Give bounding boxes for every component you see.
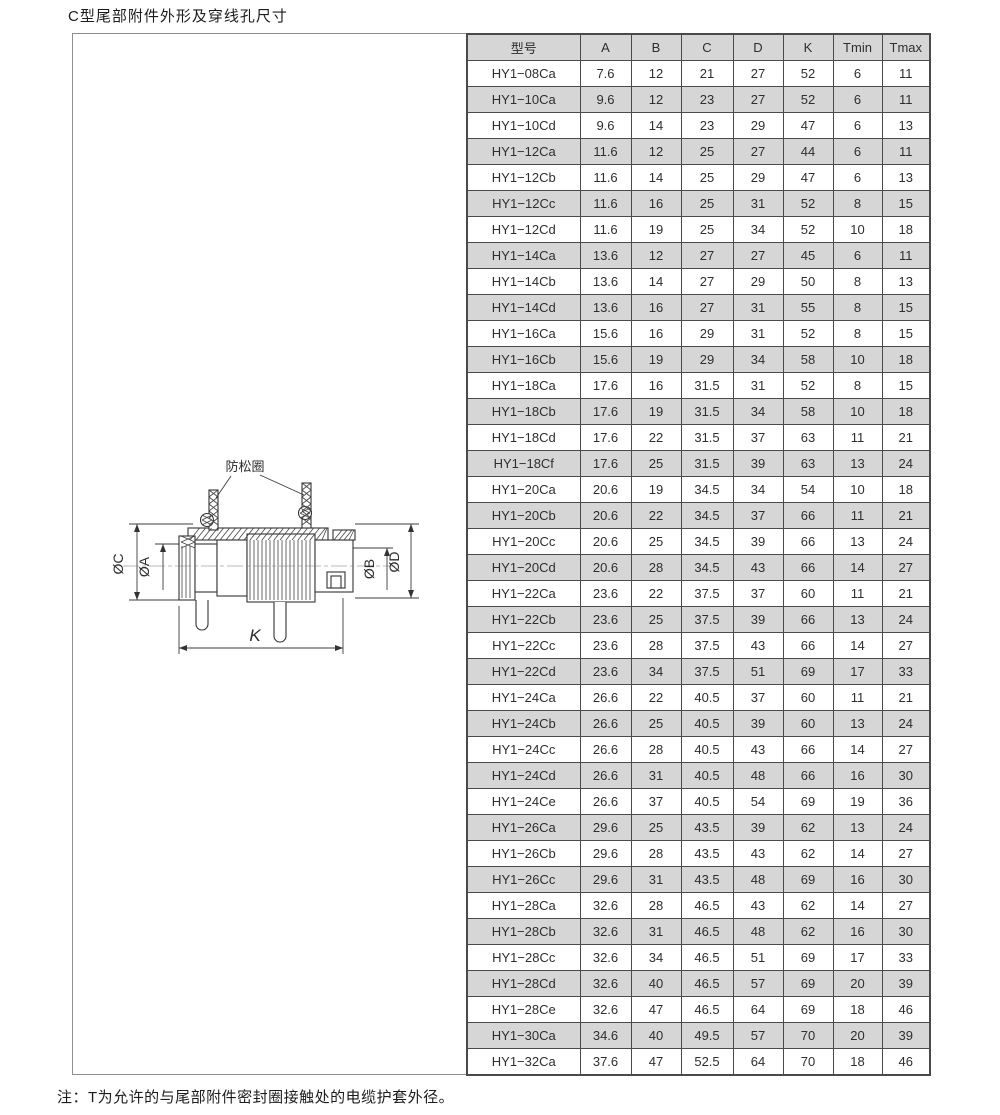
value-cell: 8: [833, 373, 882, 399]
value-cell: 40.5: [681, 711, 733, 737]
value-cell: 13: [882, 165, 930, 191]
model-cell: HY1−20Cb: [467, 503, 580, 529]
value-cell: 15.6: [580, 347, 631, 373]
value-cell: 25: [631, 711, 681, 737]
value-cell: 18: [882, 347, 930, 373]
model-cell: HY1−18Cd: [467, 425, 580, 451]
value-cell: 15: [882, 321, 930, 347]
model-cell: HY1−08Ca: [467, 61, 580, 87]
model-cell: HY1−14Ca: [467, 243, 580, 269]
value-cell: 9.6: [580, 113, 631, 139]
value-cell: 33: [882, 945, 930, 971]
table-row: HY1−12Cc11.616253152815: [467, 191, 930, 217]
model-cell: HY1−22Cd: [467, 659, 580, 685]
value-cell: 52: [783, 321, 833, 347]
value-cell: 51: [733, 659, 783, 685]
value-cell: 47: [783, 113, 833, 139]
model-cell: HY1−32Ca: [467, 1049, 580, 1076]
value-cell: 70: [783, 1049, 833, 1076]
table-header-row: 型号ABCDKTminTmax: [467, 34, 930, 61]
model-cell: HY1−12Cc: [467, 191, 580, 217]
value-cell: 14: [631, 269, 681, 295]
value-cell: 32.6: [580, 945, 631, 971]
value-cell: 37: [733, 425, 783, 451]
value-cell: 54: [733, 789, 783, 815]
value-cell: 24: [882, 451, 930, 477]
value-cell: 19: [631, 217, 681, 243]
value-cell: 13.6: [580, 269, 631, 295]
value-cell: 66: [783, 633, 833, 659]
value-cell: 29.6: [580, 815, 631, 841]
value-cell: 49.5: [681, 1023, 733, 1049]
value-cell: 48: [733, 919, 783, 945]
value-cell: 13: [833, 607, 882, 633]
table-row: HY1−10Ca9.612232752611: [467, 87, 930, 113]
value-cell: 60: [783, 581, 833, 607]
value-cell: 14: [833, 893, 882, 919]
value-cell: 48: [733, 763, 783, 789]
table-row: HY1−30Ca34.64049.557702039: [467, 1023, 930, 1049]
value-cell: 32.6: [580, 971, 631, 997]
value-cell: 6: [833, 113, 882, 139]
value-cell: 11: [882, 61, 930, 87]
value-cell: 37.5: [681, 659, 733, 685]
value-cell: 14: [833, 737, 882, 763]
table-row: HY1−18Cf17.62531.539631324: [467, 451, 930, 477]
value-cell: 26.6: [580, 685, 631, 711]
value-cell: 43: [733, 893, 783, 919]
table-row: HY1−08Ca7.612212752611: [467, 61, 930, 87]
value-cell: 27: [733, 139, 783, 165]
value-cell: 63: [783, 451, 833, 477]
value-cell: 13: [833, 711, 882, 737]
value-cell: 29.6: [580, 841, 631, 867]
value-cell: 37.6: [580, 1049, 631, 1076]
footnote: 注：T为允许的与尾部附件密封圈接触处的电缆护套外径。: [57, 1086, 454, 1107]
value-cell: 14: [631, 165, 681, 191]
value-cell: 16: [833, 867, 882, 893]
model-cell: HY1−24Cb: [467, 711, 580, 737]
table-row: HY1−28Ca32.62846.543621427: [467, 893, 930, 919]
value-cell: 46.5: [681, 997, 733, 1023]
value-cell: 18: [833, 1049, 882, 1076]
value-cell: 37.5: [681, 633, 733, 659]
table-row: HY1−16Ca15.616293152815: [467, 321, 930, 347]
value-cell: 8: [833, 269, 882, 295]
value-cell: 57: [733, 971, 783, 997]
value-cell: 43.5: [681, 867, 733, 893]
value-cell: 16: [833, 763, 882, 789]
value-cell: 14: [631, 113, 681, 139]
value-cell: 17.6: [580, 425, 631, 451]
value-cell: 24: [882, 815, 930, 841]
value-cell: 6: [833, 139, 882, 165]
value-cell: 47: [631, 1049, 681, 1076]
value-cell: 16: [631, 191, 681, 217]
value-cell: 31.5: [681, 373, 733, 399]
value-cell: 37: [733, 581, 783, 607]
dim-label-b: ØB: [361, 559, 377, 579]
table-row: HY1−18Cd17.62231.537631121: [467, 425, 930, 451]
value-cell: 22: [631, 685, 681, 711]
value-cell: 34.5: [681, 529, 733, 555]
value-cell: 45: [783, 243, 833, 269]
value-cell: 57: [733, 1023, 783, 1049]
value-cell: 18: [833, 997, 882, 1023]
value-cell: 58: [783, 399, 833, 425]
value-cell: 40.5: [681, 789, 733, 815]
value-cell: 66: [783, 529, 833, 555]
value-cell: 10: [833, 347, 882, 373]
table-row: HY1−20Cb20.62234.537661121: [467, 503, 930, 529]
value-cell: 14: [833, 555, 882, 581]
value-cell: 34.5: [681, 477, 733, 503]
value-cell: 66: [783, 555, 833, 581]
value-cell: 44: [783, 139, 833, 165]
value-cell: 43.5: [681, 841, 733, 867]
value-cell: 34.5: [681, 503, 733, 529]
column-header: Tmax: [882, 34, 930, 61]
value-cell: 31: [631, 919, 681, 945]
value-cell: 26.6: [580, 789, 631, 815]
model-cell: HY1−12Cd: [467, 217, 580, 243]
value-cell: 26.6: [580, 711, 631, 737]
value-cell: 30: [882, 763, 930, 789]
value-cell: 25: [681, 165, 733, 191]
value-cell: 29: [733, 269, 783, 295]
value-cell: 43: [733, 841, 783, 867]
value-cell: 22: [631, 581, 681, 607]
model-cell: HY1−28Ca: [467, 893, 580, 919]
value-cell: 52: [783, 61, 833, 87]
dimensions-table: 型号ABCDKTminTmax HY1−08Ca7.612212752611HY…: [466, 33, 931, 1076]
value-cell: 11: [833, 425, 882, 451]
dim-label-a: ØA: [136, 556, 152, 577]
value-cell: 47: [631, 997, 681, 1023]
table-row: HY1−26Cb29.62843.543621427: [467, 841, 930, 867]
value-cell: 69: [783, 867, 833, 893]
value-cell: 39: [882, 971, 930, 997]
value-cell: 40: [631, 971, 681, 997]
model-cell: HY1−12Ca: [467, 139, 580, 165]
value-cell: 70: [783, 1023, 833, 1049]
part-label-anti-loosening-ring: 防松圈: [225, 459, 264, 474]
technical-drawing: 防松圈 ØC ØA ØB ØD K: [93, 440, 443, 678]
value-cell: 9.6: [580, 87, 631, 113]
value-cell: 34: [631, 945, 681, 971]
model-cell: HY1−24Cc: [467, 737, 580, 763]
value-cell: 25: [681, 217, 733, 243]
value-cell: 40.5: [681, 685, 733, 711]
value-cell: 19: [833, 789, 882, 815]
value-cell: 66: [783, 503, 833, 529]
value-cell: 39: [733, 607, 783, 633]
value-cell: 43: [733, 633, 783, 659]
page-title: C型尾部附件外形及穿线孔尺寸: [68, 5, 288, 26]
connector-body: [179, 483, 355, 642]
value-cell: 27: [882, 555, 930, 581]
value-cell: 21: [882, 503, 930, 529]
value-cell: 19: [631, 399, 681, 425]
table-row: HY1−32Ca37.64752.564701846: [467, 1049, 930, 1076]
value-cell: 28: [631, 633, 681, 659]
value-cell: 32.6: [580, 893, 631, 919]
value-cell: 28: [631, 841, 681, 867]
column-header: C: [681, 34, 733, 61]
value-cell: 18: [882, 399, 930, 425]
value-cell: 30: [882, 919, 930, 945]
model-cell: HY1−30Ca: [467, 1023, 580, 1049]
value-cell: 52: [783, 191, 833, 217]
model-cell: HY1−22Cb: [467, 607, 580, 633]
value-cell: 25: [681, 191, 733, 217]
value-cell: 26.6: [580, 737, 631, 763]
value-cell: 13.6: [580, 295, 631, 321]
value-cell: 20.6: [580, 529, 631, 555]
value-cell: 55: [783, 295, 833, 321]
value-cell: 24: [882, 529, 930, 555]
value-cell: 11: [833, 685, 882, 711]
value-cell: 20.6: [580, 555, 631, 581]
value-cell: 66: [783, 737, 833, 763]
value-cell: 10: [833, 399, 882, 425]
value-cell: 8: [833, 191, 882, 217]
value-cell: 6: [833, 243, 882, 269]
value-cell: 39: [733, 711, 783, 737]
value-cell: 37.5: [681, 581, 733, 607]
table-row: HY1−20Cc20.62534.539661324: [467, 529, 930, 555]
model-cell: HY1−10Cd: [467, 113, 580, 139]
table-row: HY1−12Cd11.6192534521018: [467, 217, 930, 243]
value-cell: 20.6: [580, 503, 631, 529]
value-cell: 40.5: [681, 763, 733, 789]
model-cell: HY1−12Cb: [467, 165, 580, 191]
model-cell: HY1−26Ca: [467, 815, 580, 841]
value-cell: 39: [882, 1023, 930, 1049]
value-cell: 46.5: [681, 893, 733, 919]
table-row: HY1−24Cc26.62840.543661427: [467, 737, 930, 763]
value-cell: 34.6: [580, 1023, 631, 1049]
value-cell: 69: [783, 659, 833, 685]
value-cell: 29: [681, 347, 733, 373]
value-cell: 8: [833, 295, 882, 321]
value-cell: 37: [631, 789, 681, 815]
value-cell: 34: [733, 347, 783, 373]
value-cell: 11: [833, 581, 882, 607]
column-header: Tmin: [833, 34, 882, 61]
value-cell: 25: [681, 139, 733, 165]
value-cell: 23.6: [580, 659, 631, 685]
value-cell: 20: [833, 971, 882, 997]
table-row: HY1−28Cc32.63446.551691733: [467, 945, 930, 971]
value-cell: 51: [733, 945, 783, 971]
value-cell: 13.6: [580, 243, 631, 269]
value-cell: 32.6: [580, 919, 631, 945]
value-cell: 16: [833, 919, 882, 945]
value-cell: 18: [882, 477, 930, 503]
model-cell: HY1−26Cb: [467, 841, 580, 867]
value-cell: 11: [882, 87, 930, 113]
value-cell: 62: [783, 841, 833, 867]
model-cell: HY1−18Ca: [467, 373, 580, 399]
value-cell: 64: [733, 1049, 783, 1076]
value-cell: 23: [681, 87, 733, 113]
model-cell: HY1−20Cc: [467, 529, 580, 555]
dim-label-k: K: [249, 626, 261, 645]
table-row: HY1−28Cb32.63146.548621630: [467, 919, 930, 945]
value-cell: 60: [783, 711, 833, 737]
value-cell: 25: [631, 815, 681, 841]
value-cell: 25: [631, 529, 681, 555]
value-cell: 31: [733, 321, 783, 347]
value-cell: 11: [833, 503, 882, 529]
table-row: HY1−14Cd13.616273155815: [467, 295, 930, 321]
table-row: HY1−12Ca11.612252744611: [467, 139, 930, 165]
table-row: HY1−22Cb23.62537.539661324: [467, 607, 930, 633]
value-cell: 34: [631, 659, 681, 685]
value-cell: 69: [783, 997, 833, 1023]
value-cell: 34: [733, 399, 783, 425]
value-cell: 52: [783, 217, 833, 243]
dim-label-c: ØC: [110, 554, 126, 575]
table-row: HY1−28Ce32.64746.564691846: [467, 997, 930, 1023]
value-cell: 15: [882, 191, 930, 217]
value-cell: 47: [783, 165, 833, 191]
column-header: K: [783, 34, 833, 61]
model-cell: HY1−24Cd: [467, 763, 580, 789]
table-row: HY1−24Ce26.63740.554691936: [467, 789, 930, 815]
value-cell: 17: [833, 659, 882, 685]
value-cell: 17.6: [580, 451, 631, 477]
value-cell: 6: [833, 87, 882, 113]
model-cell: HY1−22Cc: [467, 633, 580, 659]
value-cell: 19: [631, 347, 681, 373]
value-cell: 43: [733, 737, 783, 763]
value-cell: 21: [882, 581, 930, 607]
value-cell: 11.6: [580, 165, 631, 191]
model-cell: HY1−22Ca: [467, 581, 580, 607]
value-cell: 27: [733, 243, 783, 269]
value-cell: 40.5: [681, 737, 733, 763]
table-row: HY1−20Ca20.61934.534541018: [467, 477, 930, 503]
value-cell: 13: [882, 113, 930, 139]
value-cell: 43.5: [681, 815, 733, 841]
model-cell: HY1−24Ca: [467, 685, 580, 711]
value-cell: 18: [882, 217, 930, 243]
table-row: HY1−22Ca23.62237.537601121: [467, 581, 930, 607]
value-cell: 27: [733, 87, 783, 113]
value-cell: 39: [733, 815, 783, 841]
value-cell: 23.6: [580, 607, 631, 633]
table-row: HY1−10Cd9.614232947613: [467, 113, 930, 139]
model-cell: HY1−18Cb: [467, 399, 580, 425]
value-cell: 16: [631, 295, 681, 321]
table-row: HY1−20Cd20.62834.543661427: [467, 555, 930, 581]
column-header: 型号: [467, 34, 580, 61]
model-cell: HY1−20Cd: [467, 555, 580, 581]
value-cell: 27: [733, 61, 783, 87]
value-cell: 31: [733, 191, 783, 217]
value-cell: 50: [783, 269, 833, 295]
value-cell: 46.5: [681, 971, 733, 997]
value-cell: 27: [882, 893, 930, 919]
model-cell: HY1−16Cb: [467, 347, 580, 373]
value-cell: 15.6: [580, 321, 631, 347]
value-cell: 22: [631, 425, 681, 451]
model-cell: HY1−28Ce: [467, 997, 580, 1023]
value-cell: 22: [631, 503, 681, 529]
value-cell: 48: [733, 867, 783, 893]
leader-lines: [216, 475, 304, 498]
value-cell: 52: [783, 87, 833, 113]
column-header: A: [580, 34, 631, 61]
table-row: HY1−24Ca26.62240.537601121: [467, 685, 930, 711]
value-cell: 17.6: [580, 373, 631, 399]
table-row: HY1−28Cd32.64046.557692039: [467, 971, 930, 997]
value-cell: 12: [631, 61, 681, 87]
value-cell: 17: [833, 945, 882, 971]
table-row: HY1−22Cd23.63437.551691733: [467, 659, 930, 685]
model-cell: HY1−20Ca: [467, 477, 580, 503]
model-cell: HY1−24Ce: [467, 789, 580, 815]
value-cell: 13: [882, 269, 930, 295]
value-cell: 37: [733, 685, 783, 711]
value-cell: 69: [783, 789, 833, 815]
value-cell: 62: [783, 919, 833, 945]
value-cell: 21: [882, 425, 930, 451]
value-cell: 8: [833, 321, 882, 347]
value-cell: 29: [681, 321, 733, 347]
value-cell: 24: [882, 607, 930, 633]
value-cell: 16: [631, 373, 681, 399]
table-row: HY1−18Ca17.61631.53152815: [467, 373, 930, 399]
value-cell: 43: [733, 555, 783, 581]
table-row: HY1−18Cb17.61931.534581018: [467, 399, 930, 425]
value-cell: 21: [681, 61, 733, 87]
value-cell: 31: [733, 373, 783, 399]
value-cell: 29.6: [580, 867, 631, 893]
value-cell: 66: [783, 607, 833, 633]
value-cell: 66: [783, 763, 833, 789]
value-cell: 11.6: [580, 139, 631, 165]
value-cell: 11.6: [580, 217, 631, 243]
model-cell: HY1−28Cc: [467, 945, 580, 971]
value-cell: 63: [783, 425, 833, 451]
table-row: HY1−26Ca29.62543.539621324: [467, 815, 930, 841]
value-cell: 28: [631, 555, 681, 581]
value-cell: 13: [833, 815, 882, 841]
table-row: HY1−24Cb26.62540.539601324: [467, 711, 930, 737]
value-cell: 12: [631, 87, 681, 113]
value-cell: 52.5: [681, 1049, 733, 1076]
value-cell: 34.5: [681, 555, 733, 581]
value-cell: 40: [631, 1023, 681, 1049]
table-row: HY1−16Cb15.6192934581018: [467, 347, 930, 373]
value-cell: 12: [631, 243, 681, 269]
table-row: HY1−14Ca13.612272745611: [467, 243, 930, 269]
table-row: HY1−22Cc23.62837.543661427: [467, 633, 930, 659]
value-cell: 13: [833, 451, 882, 477]
model-cell: HY1−10Ca: [467, 87, 580, 113]
value-cell: 27: [681, 295, 733, 321]
value-cell: 31.5: [681, 399, 733, 425]
value-cell: 46: [882, 1049, 930, 1076]
model-cell: HY1−14Cd: [467, 295, 580, 321]
value-cell: 69: [783, 945, 833, 971]
value-cell: 31: [733, 295, 783, 321]
value-cell: 27: [681, 269, 733, 295]
value-cell: 20: [833, 1023, 882, 1049]
